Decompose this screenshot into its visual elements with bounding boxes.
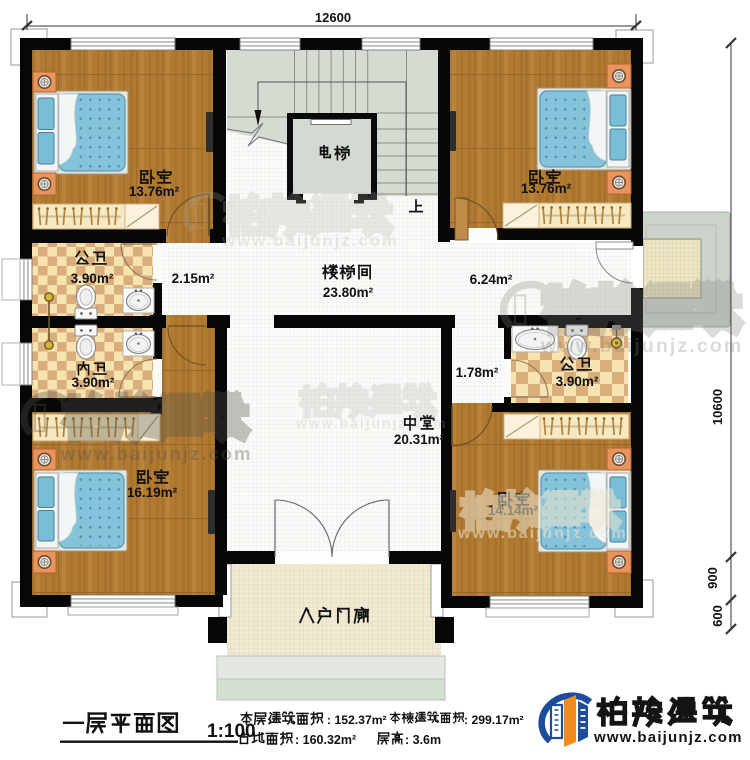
svg-text:: 299.17m²: : 299.17m² [464, 713, 524, 727]
svg-text:www.baijunjz.com: www.baijunjz.com [221, 231, 399, 250]
svg-text:www.baijunjz.com: www.baijunjz.com [295, 415, 448, 431]
svg-text:20.31m²: 20.31m² [394, 432, 445, 447]
svg-text:13.76m²: 13.76m² [129, 184, 180, 199]
svg-text:900: 900 [705, 567, 720, 589]
svg-text:1:100: 1:100 [207, 721, 256, 742]
svg-text:www.baijunjz.com: www.baijunjz.com [593, 729, 743, 746]
svg-text:www.baijunjz.com: www.baijunjz.com [60, 443, 252, 464]
svg-text:: 160.32m²: : 160.32m² [295, 733, 356, 747]
svg-text:1.78m²: 1.78m² [456, 365, 499, 380]
svg-text:www.baijunjz.com: www.baijunjz.com [540, 335, 743, 357]
svg-text:2.15m²: 2.15m² [172, 271, 215, 286]
svg-text:10600: 10600 [710, 389, 725, 425]
svg-text:600: 600 [710, 605, 725, 627]
svg-text:13.76m²: 13.76m² [521, 181, 572, 196]
svg-text:23.80m²: 23.80m² [323, 285, 374, 300]
svg-text:16.19m²: 16.19m² [127, 485, 178, 500]
svg-text:www.baijunjz.com: www.baijunjz.com [457, 525, 628, 542]
svg-text:3.90m²: 3.90m² [71, 271, 114, 286]
svg-text:: 3.6m: : 3.6m [405, 733, 441, 747]
svg-text:: 152.37m²: : 152.37m² [327, 713, 387, 727]
svg-text:3.90m²: 3.90m² [556, 374, 599, 389]
svg-text:12600: 12600 [315, 10, 351, 25]
svg-text:3.90m²: 3.90m² [72, 375, 115, 390]
svg-text:6.24m²: 6.24m² [470, 272, 513, 287]
